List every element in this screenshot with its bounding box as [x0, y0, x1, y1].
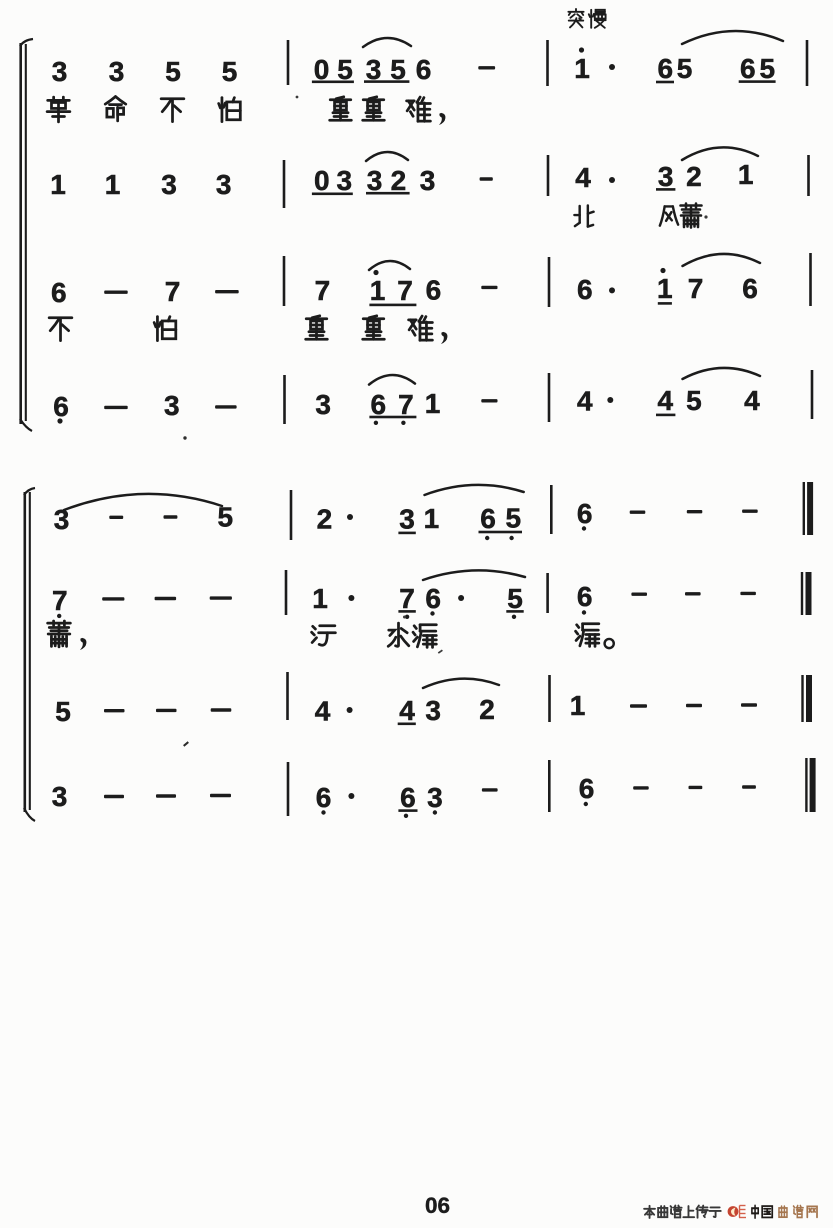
svg-text:3: 3: [367, 165, 383, 196]
svg-text:0: 0: [314, 54, 330, 85]
svg-text:6: 6: [579, 773, 595, 804]
svg-text:3: 3: [109, 56, 125, 87]
svg-text:0: 0: [314, 165, 330, 196]
svg-text:5: 5: [222, 56, 238, 87]
svg-text:1: 1: [425, 388, 441, 419]
svg-text:3: 3: [658, 161, 674, 192]
svg-text:7: 7: [688, 273, 704, 304]
svg-text:4: 4: [577, 386, 593, 417]
svg-text:5: 5: [677, 53, 693, 84]
svg-text:6: 6: [53, 391, 69, 422]
svg-text:2: 2: [686, 161, 702, 192]
svg-text:6: 6: [658, 53, 674, 84]
svg-text:7: 7: [398, 389, 414, 420]
svg-text:5: 5: [55, 696, 71, 727]
svg-text:3: 3: [52, 56, 68, 87]
svg-text:2: 2: [391, 165, 407, 196]
svg-text:1: 1: [574, 53, 590, 84]
svg-text:3: 3: [427, 782, 443, 813]
svg-text:3: 3: [161, 169, 177, 200]
svg-text:3: 3: [315, 389, 331, 420]
svg-text:1: 1: [657, 273, 673, 304]
svg-text:7: 7: [397, 275, 413, 306]
svg-text:6: 6: [425, 583, 441, 614]
svg-text:6: 6: [416, 54, 432, 85]
svg-text:3: 3: [164, 390, 180, 421]
svg-text:4: 4: [575, 162, 591, 193]
svg-text:2: 2: [479, 694, 495, 725]
svg-text:5: 5: [760, 53, 776, 84]
svg-text:7: 7: [399, 583, 415, 614]
svg-text:2: 2: [317, 504, 333, 535]
svg-text:1: 1: [370, 275, 386, 306]
svg-text:6: 6: [480, 503, 496, 534]
svg-text:3: 3: [420, 165, 436, 196]
svg-text:4: 4: [658, 385, 674, 416]
svg-text:6: 6: [400, 782, 416, 813]
svg-text:4: 4: [744, 385, 760, 416]
svg-text:1: 1: [738, 159, 754, 190]
svg-text:7: 7: [52, 585, 68, 616]
svg-text:4: 4: [315, 696, 331, 727]
svg-text:5: 5: [506, 503, 522, 534]
svg-text:06: 06: [425, 1193, 450, 1218]
svg-text:6: 6: [577, 498, 593, 529]
svg-text:5: 5: [507, 583, 523, 614]
svg-text:3: 3: [399, 504, 415, 535]
svg-text:6: 6: [740, 53, 756, 84]
svg-text:1: 1: [105, 169, 121, 200]
svg-text:1: 1: [570, 690, 586, 721]
svg-text:7: 7: [165, 276, 181, 307]
svg-text:4: 4: [399, 695, 415, 726]
svg-text:6: 6: [577, 581, 593, 612]
svg-text:6: 6: [577, 274, 593, 305]
svg-text:1: 1: [312, 583, 328, 614]
svg-text:1: 1: [424, 503, 440, 534]
svg-text:6: 6: [426, 275, 442, 306]
svg-text:6: 6: [51, 277, 67, 308]
svg-text:5: 5: [165, 56, 181, 87]
svg-text:6: 6: [371, 389, 387, 420]
svg-text:1: 1: [50, 169, 66, 200]
svg-text:5: 5: [337, 54, 353, 85]
svg-text:7: 7: [315, 275, 331, 306]
svg-text:3: 3: [216, 169, 232, 200]
svg-text:3: 3: [337, 165, 353, 196]
svg-text:5: 5: [686, 385, 702, 416]
svg-text:6: 6: [742, 273, 758, 304]
svg-text:6: 6: [316, 782, 332, 813]
svg-text:3: 3: [52, 781, 68, 812]
svg-text:3: 3: [425, 695, 441, 726]
